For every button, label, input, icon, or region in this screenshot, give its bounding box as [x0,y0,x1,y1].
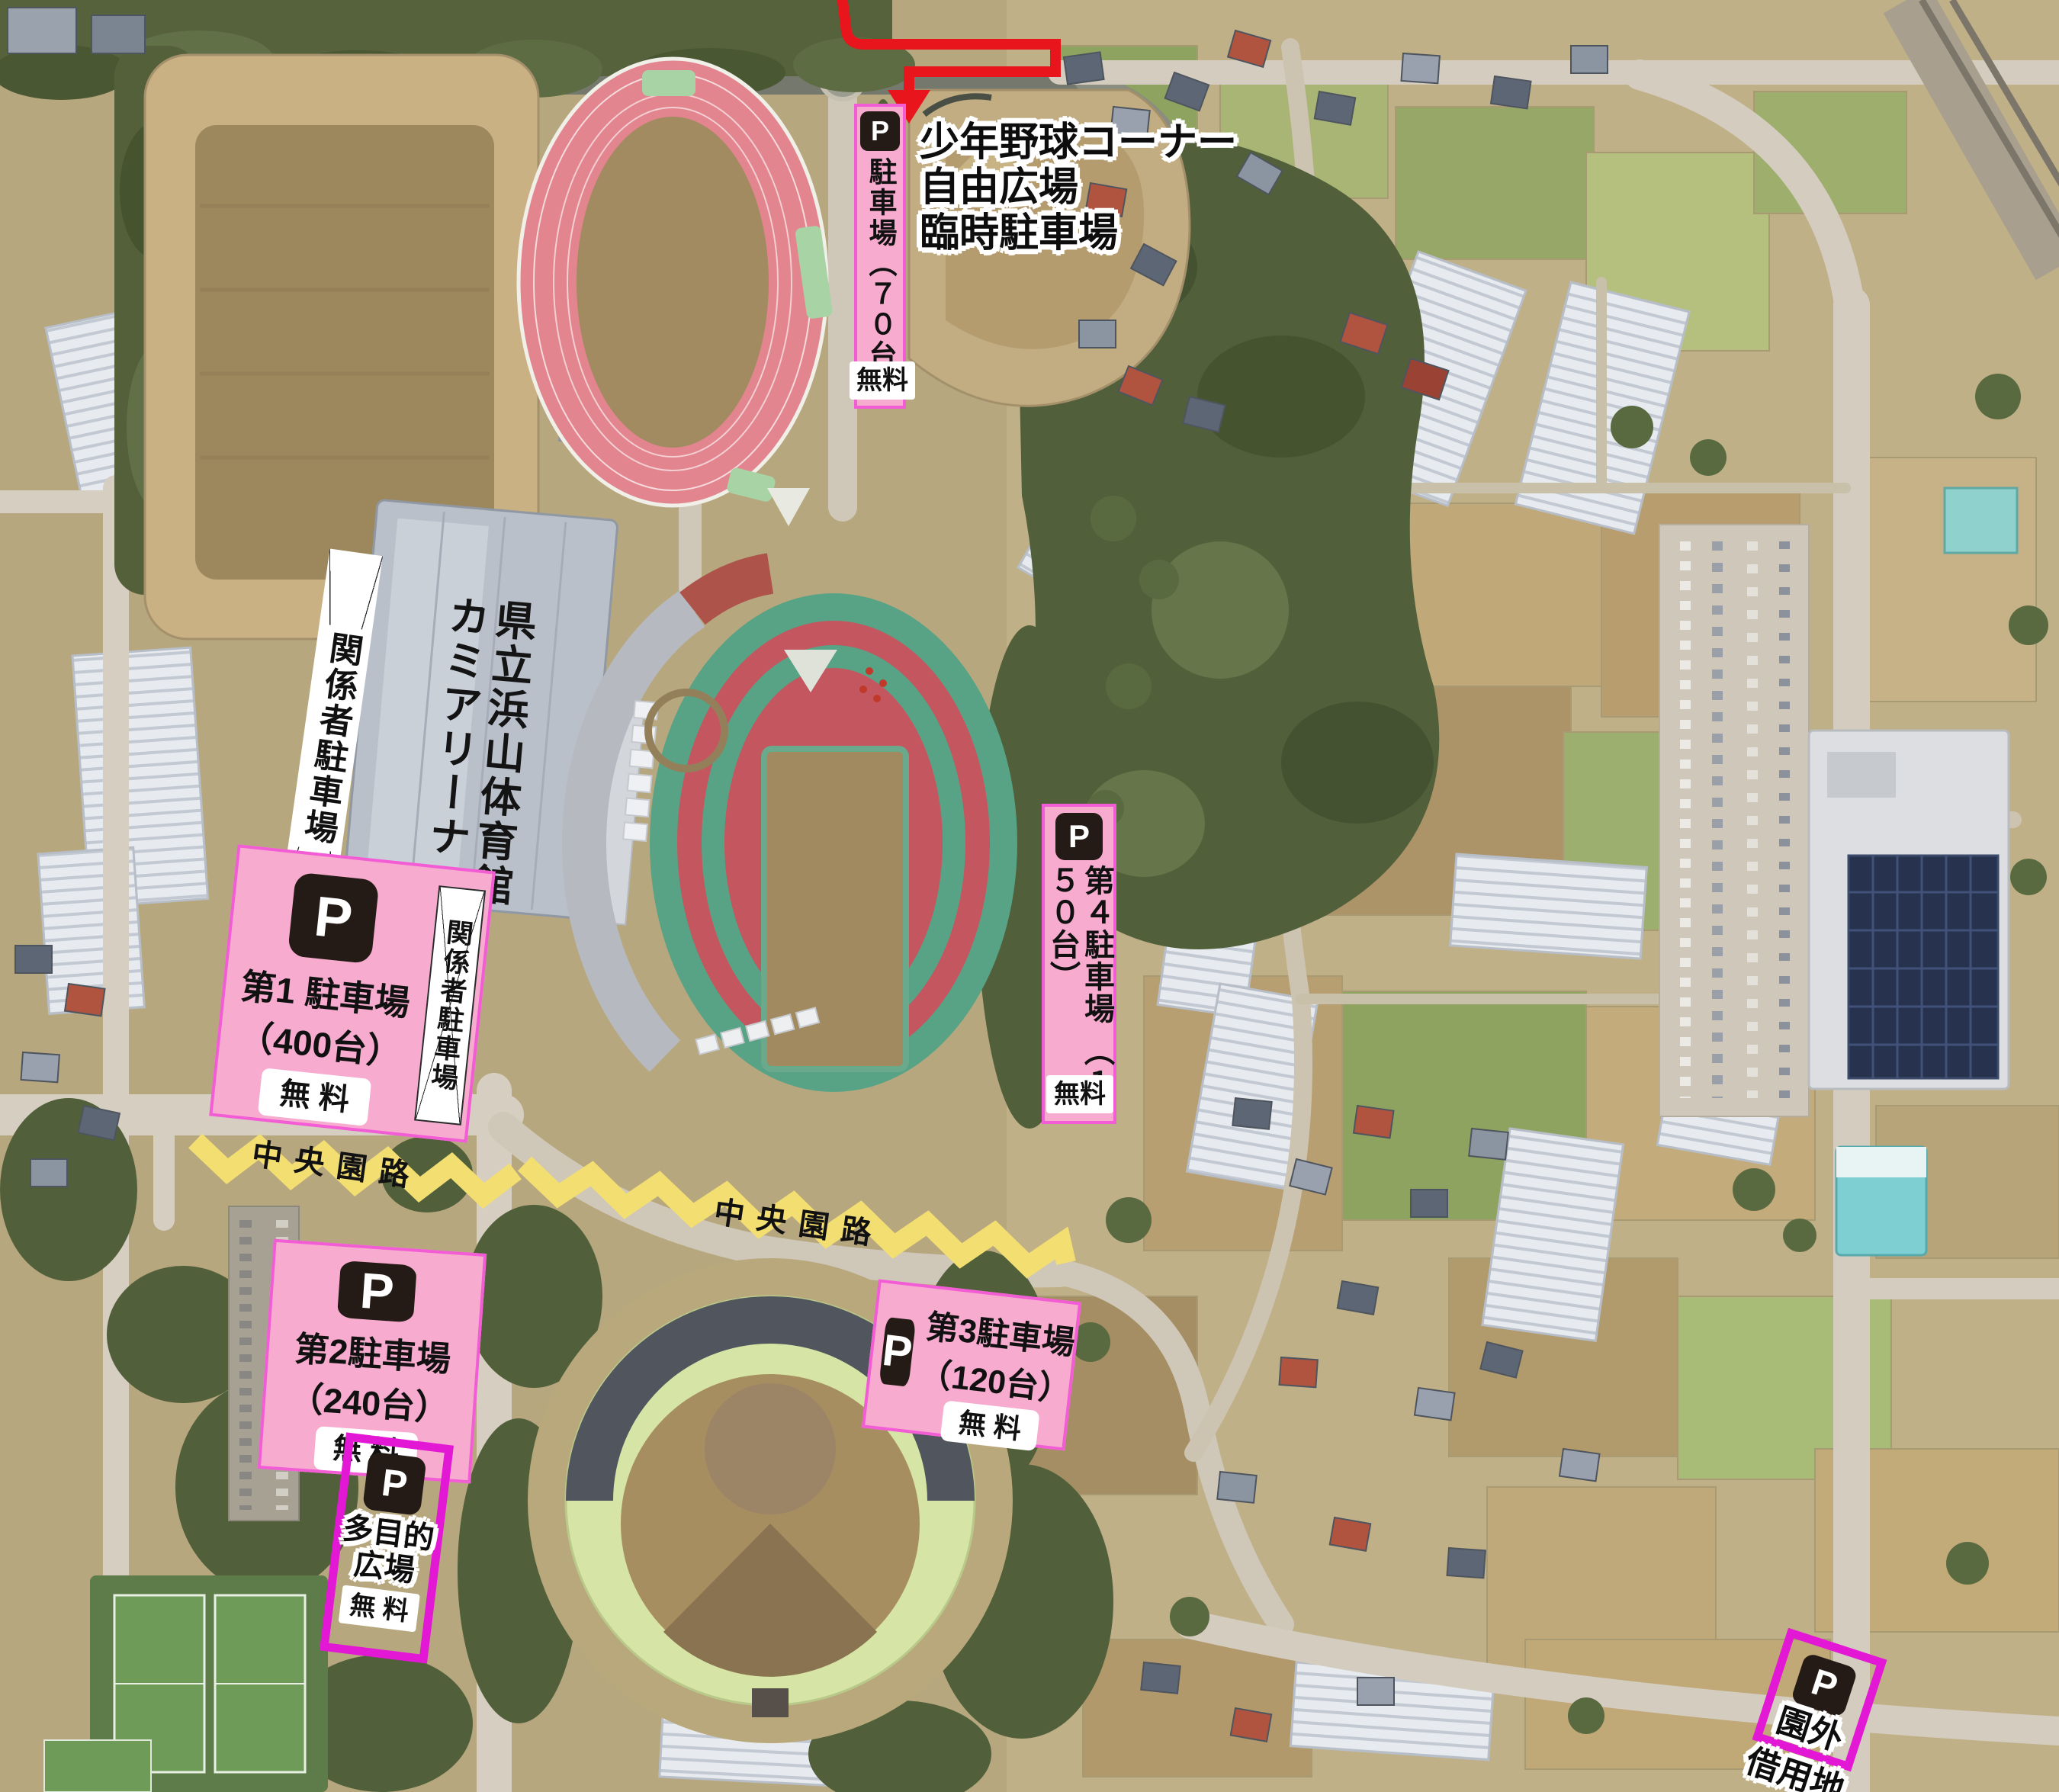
parking-map: P 駐車場（７０台） 無料 少年野球コーナー 自由広場 臨時駐車場 関係者駐車場… [0,0,2059,1792]
parking4-name-column: 第４駐車場 [1080,865,1113,1025]
description-line: 少年野球コーナー [920,120,1237,165]
parking1-label: P 第1 駐車場 （400台） 無 料 関係者駐車場 [209,844,496,1143]
parking3-label: P 第3駐車場 （120台） 無 料 [862,1279,1081,1450]
parking-icon: P [362,1451,427,1516]
parking-icon: P [860,111,900,151]
description-line: 臨時駐車場 [920,211,1237,256]
parking-icon: P [287,872,380,964]
fee-badge: 無 料 [258,1068,371,1126]
description-line: 自由広場 [920,165,1237,210]
parking-icon: P [337,1261,417,1322]
temporary-parking-label: P 駐車場（７０台） 無料 [854,104,906,409]
parking4-label: P 第４駐車場 （１５０台） 無料 [1042,804,1116,1124]
parking2-capacity: （240台） [287,1370,451,1430]
fee-badge: 無料 [1046,1075,1113,1114]
temporary-parking-description: 少年野球コーナー 自由広場 臨時駐車場 [920,120,1237,256]
fee-badge: 無 料 [339,1585,420,1632]
fee-badge: 無料 [850,361,915,400]
parking-icon: P [1055,813,1103,860]
parking-icon: P [879,1317,915,1387]
parking3-text: 第3駐車場 （120台） 無 料 [911,1300,1079,1455]
multipurpose-name-line: 広場 [352,1547,416,1588]
